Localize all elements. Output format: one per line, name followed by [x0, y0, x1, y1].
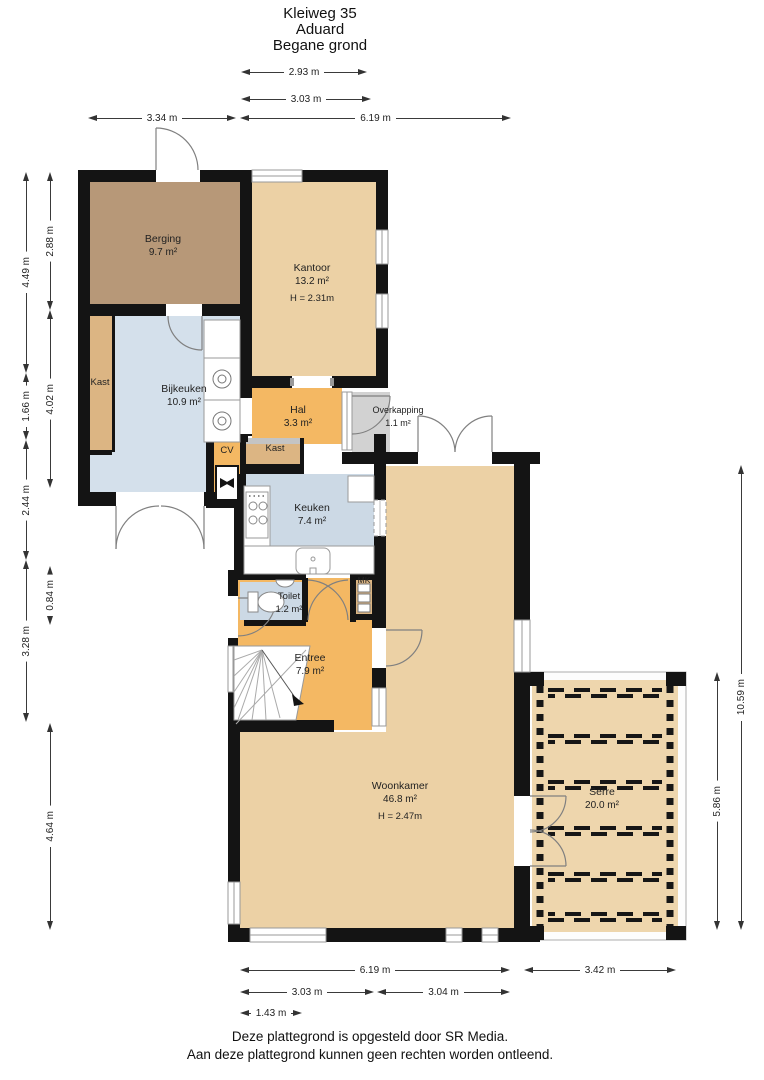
dimension-r_586: 5.86 m — [711, 672, 723, 930]
window-entree-woonkamer — [372, 688, 386, 726]
window-kantoor-right-1 — [376, 230, 388, 264]
room-area-overkapping: 1.1 m² — [372, 417, 423, 430]
room-name-berging: Berging — [145, 233, 181, 246]
room-area-hal: 3.3 m² — [284, 417, 312, 430]
dim-arrowhead — [47, 921, 53, 930]
dimension-l_449: 4.49 m — [20, 172, 32, 373]
room-label-serre: Serre20.0 m² — [585, 786, 619, 812]
dimension-value: 3.03 m — [287, 987, 328, 998]
window-kantoor-right-2 — [376, 294, 388, 328]
room-label-hal: Hal3.3 m² — [284, 404, 312, 430]
dimension-top_334: 3.34 m — [88, 112, 236, 124]
sink-icon — [296, 548, 330, 574]
dim-arrowhead — [23, 560, 29, 569]
room-name-toilet: Toilet — [276, 590, 303, 603]
dimension-b_304: 3.04 m — [377, 986, 510, 998]
dim-arrowhead — [358, 69, 367, 75]
dimension-value: 3.03 m — [286, 94, 327, 105]
dim-arrowhead — [47, 566, 53, 575]
room-name-kast2: Kast — [265, 442, 284, 455]
dimension-b_143: 1.43 m — [240, 1007, 302, 1019]
dimension-value: 3.04 m — [423, 987, 464, 998]
dimension-l_288: 2.88 m — [44, 172, 56, 310]
dim-arrowhead — [362, 96, 371, 102]
dim-arrowhead — [47, 172, 53, 181]
dimension-value: 2.44 m — [21, 480, 32, 521]
dimension-value: 10.59 m — [736, 674, 747, 720]
window-keuken-hatch — [374, 500, 386, 536]
room-name-woonkamer: Woonkamer — [372, 780, 428, 793]
room-name-overkapping: Overkapping — [372, 404, 423, 417]
dim-arrowhead — [47, 616, 53, 625]
dimension-value: 3.42 m — [580, 965, 621, 976]
window-woonkamer-bottom-2 — [446, 928, 462, 942]
dim-arrowhead — [293, 1010, 302, 1016]
opening-tick — [330, 378, 334, 386]
dimension-l_084: 0.84 m — [44, 573, 56, 618]
dimension-l_244: 2.44 m — [20, 440, 32, 560]
dim-arrowhead — [667, 967, 676, 973]
dimension-top_293: 2.93 m — [241, 66, 367, 78]
room-name-mk: MK — [358, 574, 371, 587]
room-label-cv: CV — [220, 444, 233, 457]
room-area-bijkeuken: 10.9 m² — [161, 396, 207, 409]
room-area-keuken: 7.4 m² — [294, 515, 330, 528]
dimension-value: 2.88 m — [45, 221, 56, 262]
dim-arrowhead — [501, 967, 510, 973]
window-woonkamer-bottom-3 — [482, 928, 498, 942]
room-name-cv: CV — [220, 444, 233, 457]
dimension-l_402: 4.02 m — [44, 310, 56, 488]
window-woonkamer-right — [514, 620, 530, 672]
room-name-kast1: Kast — [90, 376, 109, 389]
footer-line1: Deze plattegrond is opgesteld door SR Me… — [187, 1028, 553, 1046]
dimension-b_342: 3.42 m — [524, 964, 676, 976]
dimension-value: 4.64 m — [45, 806, 56, 847]
dim-arrowhead — [738, 921, 744, 930]
room-label-kantoor: Kantoor13.2 m²H = 2.31m — [290, 262, 334, 305]
dim-arrowhead — [23, 713, 29, 722]
dimension-r_1059: 10.59 m — [735, 465, 747, 930]
dimension-value: 3.34 m — [142, 113, 183, 124]
dimension-value: 5.86 m — [712, 781, 723, 822]
dimension-value: 1.66 m — [21, 386, 32, 427]
dim-arrowhead — [501, 989, 510, 995]
dimension-l_328: 3.28 m — [20, 560, 32, 722]
room-area-serre: 20.0 m² — [585, 799, 619, 812]
plan-footer: Deze plattegrond is opgesteld door SR Me… — [187, 1028, 553, 1064]
room-h-kantoor: H = 2.31m — [290, 292, 334, 305]
dimension-value: 6.19 m — [355, 965, 396, 976]
dimension-value: 4.02 m — [45, 379, 56, 420]
dim-arrowhead — [227, 115, 236, 121]
door-french-bijkeuken — [116, 506, 204, 549]
window-kantoor-top — [252, 170, 302, 182]
dim-arrowhead — [47, 479, 53, 488]
room-label-toilet: Toilet1.2 m² — [276, 590, 303, 616]
dimension-l_166: 1.66 m — [20, 373, 32, 440]
window-overkapping — [342, 392, 352, 450]
dimension-top_619: 6.19 m — [240, 112, 511, 124]
dimension-value: 4.49 m — [21, 252, 32, 293]
room-area-woonkamer: 46.8 m² — [372, 793, 428, 806]
room-name-entree: Entree — [295, 652, 326, 665]
room-name-keuken: Keuken — [294, 502, 330, 515]
room-name-kantoor: Kantoor — [290, 262, 334, 275]
room-area-berging: 9.7 m² — [145, 246, 181, 259]
dim-arrowhead — [240, 967, 249, 973]
dim-arrowhead — [23, 551, 29, 560]
bijkeuken-appliances — [204, 320, 240, 442]
room-area-entree: 7.9 m² — [295, 665, 326, 678]
room-label-woonkamer: Woonkamer46.8 m²H = 2.47m — [372, 780, 428, 823]
room-label-kast1: Kast — [90, 376, 109, 389]
dimension-b_303: 3.03 m — [240, 986, 374, 998]
dim-arrowhead — [365, 989, 374, 995]
room-name-serre: Serre — [585, 786, 619, 799]
stove-icon — [246, 492, 268, 538]
dim-arrowhead — [23, 172, 29, 181]
dim-arrowhead — [23, 373, 29, 382]
opening-tick — [290, 378, 294, 386]
room-label-keuken: Keuken7.4 m² — [294, 502, 330, 528]
dim-arrowhead — [377, 989, 386, 995]
room-label-berging: Berging9.7 m² — [145, 233, 181, 259]
dim-arrowhead — [502, 115, 511, 121]
dim-arrowhead — [47, 310, 53, 319]
dimension-l_464: 4.64 m — [44, 723, 56, 930]
door-berging-outside — [156, 128, 198, 170]
dim-arrowhead — [738, 465, 744, 474]
dim-arrowhead — [47, 301, 53, 310]
cv-boiler-icon — [216, 466, 238, 500]
dim-arrowhead — [714, 672, 720, 681]
floor-plan-drawing — [0, 0, 764, 1080]
dim-arrowhead — [88, 115, 97, 121]
dim-arrowhead — [23, 440, 29, 449]
dimension-value: 6.19 m — [355, 113, 396, 124]
dim-arrowhead — [241, 96, 250, 102]
dim-arrowhead — [240, 989, 249, 995]
dimension-value: 1.43 m — [251, 1008, 292, 1019]
dim-arrowhead — [47, 723, 53, 732]
dim-arrowhead — [23, 431, 29, 440]
dimension-top_303: 3.03 m — [241, 93, 371, 105]
footer-line2: Aan deze plattegrond kunnen geen rechten… — [187, 1046, 553, 1064]
door-french-woonkamer — [418, 416, 492, 452]
meter-cabinet-icon — [358, 584, 370, 612]
dimension-b_619: 6.19 m — [240, 964, 510, 976]
dim-arrowhead — [240, 115, 249, 121]
room-label-overkapping: Overkapping1.1 m² — [372, 404, 423, 430]
dim-arrowhead — [240, 1010, 249, 1016]
dimension-value: 3.28 m — [21, 621, 32, 662]
window-woonkamer-left — [228, 882, 240, 924]
room-name-hal: Hal — [284, 404, 312, 417]
floor-plan-page: Kleiweg 35 Aduard Begane grond — [0, 0, 764, 1080]
room-name-bijkeuken: Bijkeuken — [161, 383, 207, 396]
dimension-value: 2.93 m — [284, 67, 325, 78]
dimension-value: 0.84 m — [45, 575, 56, 616]
room-h-woonkamer: H = 2.47m — [372, 810, 428, 823]
room-label-bijkeuken: Bijkeuken10.9 m² — [161, 383, 207, 409]
room-label-entree: Entree7.9 m² — [295, 652, 326, 678]
dim-arrowhead — [23, 364, 29, 373]
dim-arrowhead — [524, 967, 533, 973]
dim-arrowhead — [241, 69, 250, 75]
room-area-kantoor: 13.2 m² — [290, 275, 334, 288]
room-area-toilet: 1.2 m² — [276, 603, 303, 616]
room-label-mk: MK — [358, 574, 371, 587]
window-woonkamer-bottom-1 — [250, 928, 326, 942]
room-label-kast2: Kast — [265, 442, 284, 455]
dim-arrowhead — [714, 921, 720, 930]
